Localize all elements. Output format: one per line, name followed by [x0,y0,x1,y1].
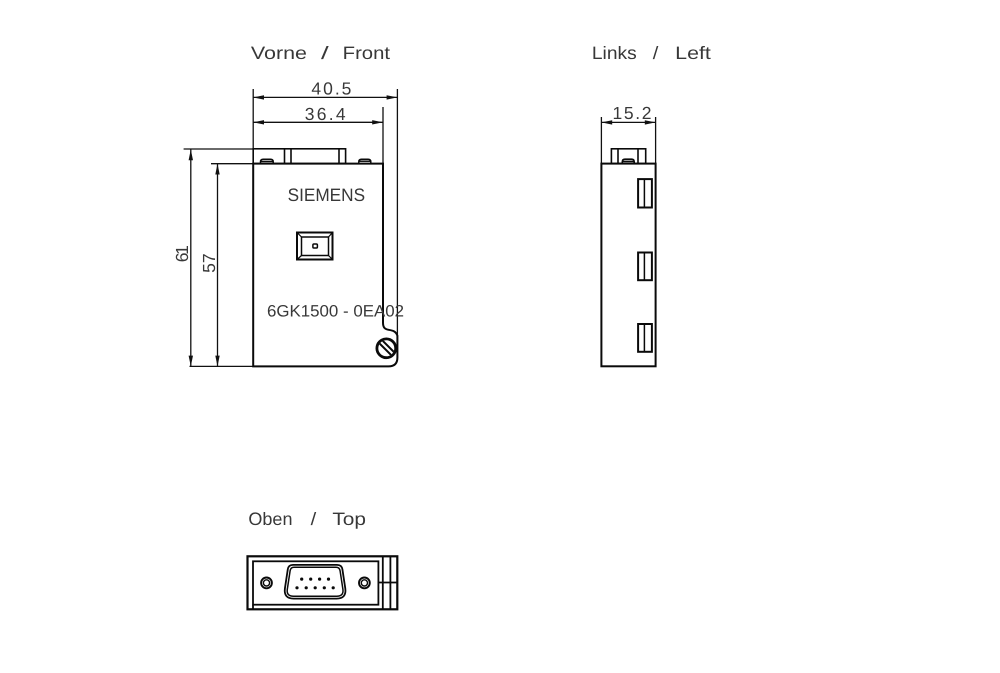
svg-text:36.4: 36.4 [305,104,346,124]
svg-text:SIEMENS: SIEMENS [288,185,366,205]
svg-text:Oben/Top: Oben/Top [248,509,366,529]
svg-text:15.2: 15.2 [613,103,652,123]
svg-text:Links/Left: Links/Left [592,43,711,63]
svg-text:57: 57 [199,253,219,273]
svg-text:40.5: 40.5 [311,79,351,99]
svg-text:6GK1500 - 0EA02: 6GK1500 - 0EA02 [267,303,404,321]
svg-text:Vorne/Front: Vorne/Front [251,43,390,63]
svg-text:61: 61 [172,245,192,262]
